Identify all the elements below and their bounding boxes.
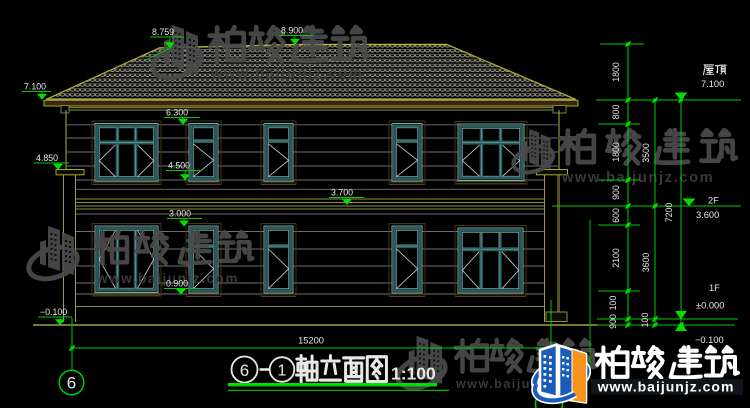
svg-text:3600: 3600 (641, 253, 651, 273)
svg-text:±0.000: ±0.000 (696, 301, 724, 311)
svg-text:900: 900 (611, 185, 621, 200)
svg-text:−0.100: −0.100 (40, 307, 67, 317)
svg-text:3.600: 3.600 (696, 210, 719, 220)
svg-text:3500: 3500 (641, 143, 651, 163)
svg-text:6: 6 (67, 374, 76, 393)
svg-text:1: 1 (278, 363, 287, 380)
svg-text:www.baijunjz.com: www.baijunjz.com (597, 379, 735, 395)
svg-text:2100: 2100 (611, 248, 621, 268)
svg-text:100: 100 (608, 296, 618, 311)
svg-text:15200: 15200 (298, 336, 324, 346)
svg-text:1800: 1800 (611, 142, 621, 162)
svg-text:6: 6 (240, 361, 249, 380)
svg-text:4.850: 4.850 (36, 153, 58, 163)
svg-text:8.900: 8.900 (281, 26, 303, 36)
svg-text:0.900: 0.900 (166, 279, 188, 289)
svg-text:7200: 7200 (664, 203, 674, 223)
svg-text:www.baijunjz.com: www.baijunjz.com (561, 170, 714, 186)
svg-text:3.000: 3.000 (169, 209, 191, 219)
svg-text:www.baijunjz.com: www.baijunjz.com (210, 66, 363, 82)
svg-text:7.100: 7.100 (701, 79, 724, 89)
svg-text:3.700: 3.700 (331, 188, 353, 198)
svg-text:6.300: 6.300 (166, 108, 188, 118)
svg-text:900: 900 (608, 314, 618, 329)
svg-text:2F: 2F (708, 196, 719, 206)
svg-text:7.100: 7.100 (24, 82, 46, 92)
svg-text:1F: 1F (709, 283, 720, 293)
svg-text:−0.100: −0.100 (695, 335, 724, 345)
svg-text:1800: 1800 (611, 62, 621, 82)
svg-text:800: 800 (611, 105, 621, 120)
svg-text:4.500: 4.500 (168, 161, 190, 171)
svg-text:100: 100 (640, 313, 650, 328)
svg-text:1:100: 1:100 (391, 364, 436, 384)
svg-text:600: 600 (611, 208, 621, 223)
svg-text:8.759: 8.759 (152, 27, 174, 37)
